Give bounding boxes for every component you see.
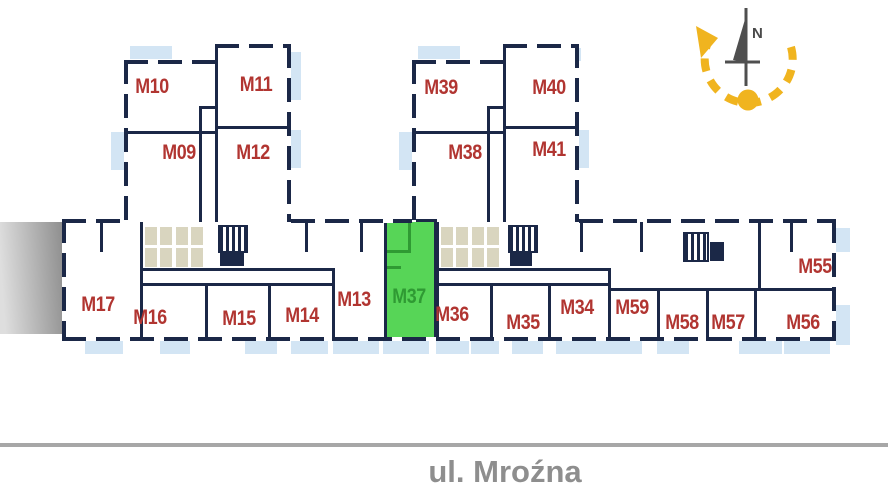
unit-label-m39[interactable]: M39 (424, 76, 457, 100)
wall (580, 222, 583, 252)
street-name: ul. Mroźna (428, 454, 581, 490)
wall (360, 222, 363, 252)
rotate-arrowhead-icon (696, 26, 718, 58)
wall (790, 222, 793, 252)
wall (754, 288, 757, 341)
wall (215, 126, 291, 129)
balcony (333, 341, 379, 354)
wall (268, 283, 271, 341)
unit-label-m59[interactable]: M59 (615, 296, 648, 320)
wall (575, 44, 579, 222)
unit-label-m11[interactable]: M11 (240, 73, 272, 97)
compass: N (686, 2, 816, 117)
balcony (130, 46, 172, 59)
wall (706, 288, 709, 341)
unit-label-m35[interactable]: M35 (506, 311, 539, 335)
wall (199, 106, 218, 109)
wall (490, 283, 493, 341)
wall (100, 222, 103, 252)
wall (758, 222, 761, 288)
wall (758, 288, 835, 291)
wall (332, 268, 335, 341)
balcony (784, 341, 830, 354)
wall (436, 268, 608, 271)
unit-label-m41[interactable]: M41 (532, 138, 565, 162)
wall (124, 60, 128, 222)
unit-label-m13[interactable]: M13 (337, 288, 370, 312)
unit-label-m34[interactable]: M34 (560, 296, 593, 320)
unit-label-m37-selected[interactable]: M37 (392, 285, 425, 309)
floorplan-canvas: M10 M11 M09 M12 M39 M40 M38 M41 M17 M16 … (0, 0, 888, 500)
unit-label-m38[interactable]: M38 (448, 141, 481, 165)
unit-label-m55[interactable]: M55 (798, 255, 831, 279)
wall (439, 283, 608, 286)
wall (124, 131, 217, 134)
balcony (657, 341, 689, 354)
wall (657, 288, 660, 341)
wall (291, 219, 412, 223)
north-label: N (752, 25, 763, 42)
unit-label-m36[interactable]: M36 (435, 303, 468, 327)
wall (305, 222, 308, 252)
wall (205, 283, 208, 341)
wall (579, 219, 832, 223)
wall (140, 268, 332, 271)
service-block (441, 227, 468, 267)
wall (412, 60, 507, 64)
balcony (85, 341, 123, 354)
balcony (836, 305, 850, 345)
wall (62, 219, 124, 223)
wall (124, 60, 219, 64)
wall (215, 44, 291, 48)
wall (487, 108, 490, 222)
unit-label-m40[interactable]: M40 (532, 76, 565, 100)
balcony (436, 341, 469, 354)
unit-label-m16[interactable]: M16 (133, 306, 166, 330)
wall (62, 337, 836, 341)
balcony (512, 341, 543, 354)
building-continuation-shadow (0, 222, 62, 334)
staircase (683, 232, 709, 262)
elevator (220, 253, 244, 266)
wall (832, 219, 836, 341)
wall (503, 48, 506, 222)
wall (412, 60, 416, 222)
elevator (510, 253, 532, 266)
balcony (160, 341, 190, 354)
rotate-handle-dot[interactable] (738, 90, 759, 111)
unit-label-m17[interactable]: M17 (81, 293, 114, 317)
wall (640, 222, 643, 252)
wall (140, 283, 332, 286)
street-line (0, 443, 888, 447)
wall (215, 48, 218, 222)
wall (548, 283, 551, 341)
wall (487, 106, 506, 109)
wall (503, 126, 579, 129)
balcony (111, 132, 124, 170)
unit-label-m12[interactable]: M12 (236, 141, 269, 165)
elevator (710, 242, 724, 261)
balcony (471, 341, 499, 354)
wall (199, 108, 202, 222)
staircase (218, 225, 248, 253)
wall (387, 250, 411, 253)
staircase (508, 225, 538, 253)
balcony (836, 228, 850, 252)
unit-label-m10[interactable]: M10 (135, 75, 168, 99)
balcony (245, 341, 277, 354)
wall (412, 131, 505, 134)
balcony (418, 46, 460, 59)
service-block (472, 227, 499, 267)
unit-label-m58[interactable]: M58 (665, 311, 698, 335)
north-needle-icon: N (725, 8, 763, 86)
wall (608, 268, 611, 341)
service-block (176, 227, 203, 267)
unit-label-m14[interactable]: M14 (285, 304, 318, 328)
wall (62, 219, 66, 341)
balcony (291, 341, 328, 354)
tower1-right-floor (215, 44, 291, 222)
unit-label-m57[interactable]: M57 (711, 311, 744, 335)
wall (408, 222, 411, 250)
unit-label-m56[interactable]: M56 (786, 311, 819, 335)
wall (503, 44, 579, 48)
tower2-right-floor (503, 44, 579, 222)
balcony (383, 341, 429, 354)
wall (287, 44, 291, 222)
balcony (739, 341, 782, 354)
wall (608, 288, 758, 291)
service-block (145, 227, 172, 267)
balcony (399, 132, 412, 170)
unit-label-m09[interactable]: M09 (162, 141, 195, 165)
balcony (556, 341, 642, 354)
unit-label-m15[interactable]: M15 (222, 307, 255, 331)
wall (387, 266, 401, 269)
